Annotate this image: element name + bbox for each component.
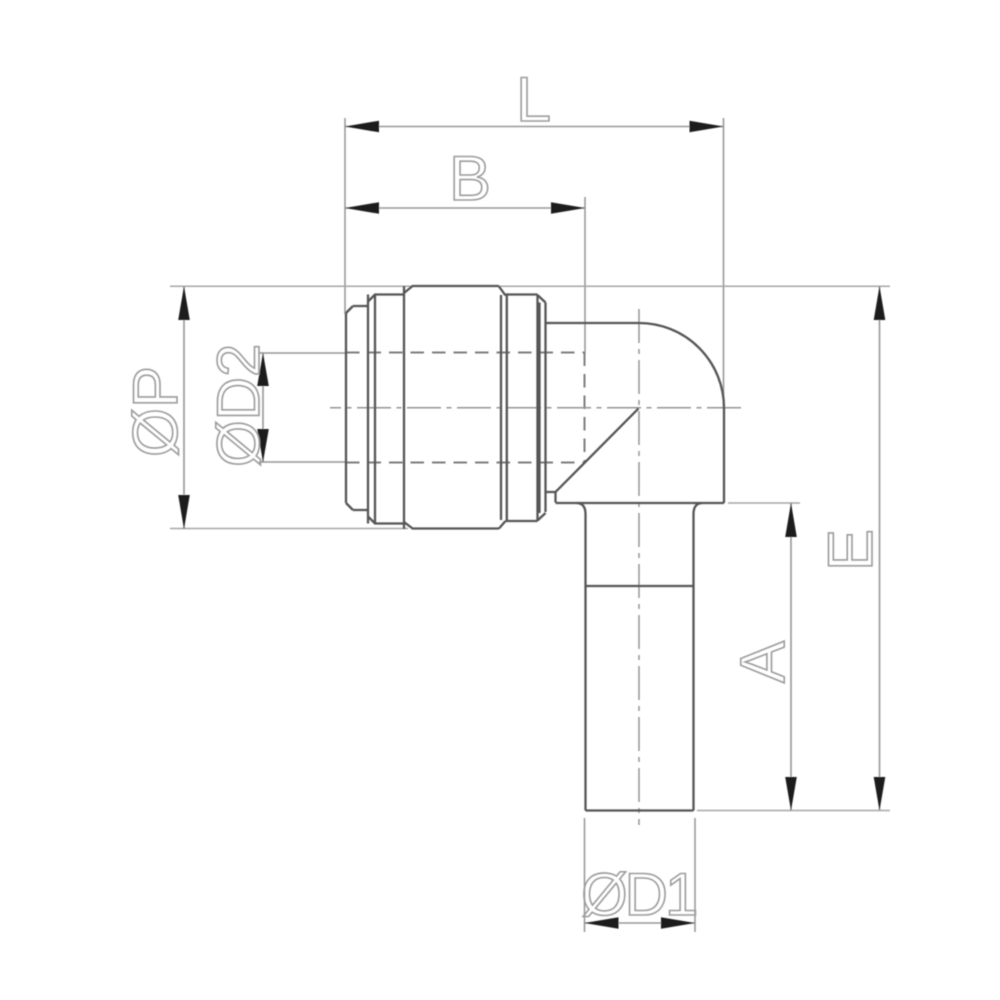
svg-text:ØD1: ØD1 xyxy=(581,861,696,928)
svg-text:B: B xyxy=(449,144,491,214)
svg-text:ØP: ØP xyxy=(121,366,191,457)
svg-text:L: L xyxy=(516,65,551,135)
svg-text:A: A xyxy=(728,641,798,683)
svg-text:ØD2: ØD2 xyxy=(205,344,272,467)
svg-text:E: E xyxy=(816,529,886,571)
